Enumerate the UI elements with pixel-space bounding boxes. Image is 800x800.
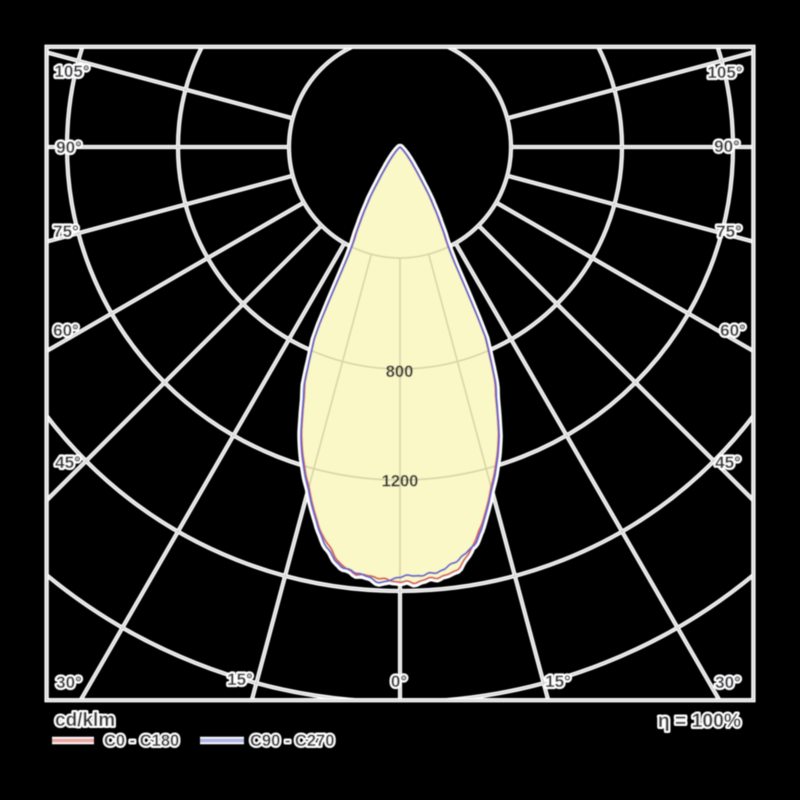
svg-text:1200: 1200: [382, 473, 419, 491]
svg-text:105°: 105°: [54, 62, 89, 81]
svg-text:C0 - C180: C0 - C180: [104, 732, 179, 750]
svg-text:30°: 30°: [56, 673, 82, 692]
svg-text:60°: 60°: [53, 321, 79, 340]
svg-text:105°: 105°: [707, 63, 742, 82]
svg-text:15°: 15°: [545, 672, 571, 691]
svg-text:90°: 90°: [714, 137, 740, 156]
svg-text:45°: 45°: [55, 453, 81, 472]
svg-text:45°: 45°: [715, 453, 741, 472]
svg-text:C90 - C270: C90 - C270: [250, 732, 334, 750]
svg-text:15°: 15°: [227, 670, 253, 689]
svg-text:0°: 0°: [391, 672, 407, 691]
svg-text:η = 100%: η = 100%: [658, 711, 741, 732]
svg-text:30°: 30°: [715, 673, 741, 692]
svg-text:75°: 75°: [53, 222, 79, 241]
svg-text:60°: 60°: [720, 321, 746, 340]
svg-text:800: 800: [386, 363, 414, 381]
svg-text:cd/klm: cd/klm: [55, 710, 115, 731]
svg-text:75°: 75°: [716, 222, 742, 241]
svg-text:90°: 90°: [56, 138, 82, 157]
